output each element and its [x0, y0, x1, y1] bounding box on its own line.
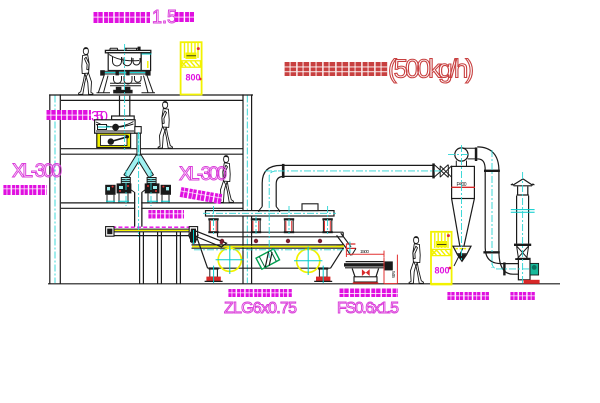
svg-text:1500: 1500 [360, 249, 369, 255]
svg-text:800: 800 [435, 266, 450, 276]
svg-text:545: 545 [390, 271, 396, 278]
svg-text:FS0.6x1.5: FS0.6x1.5 [337, 300, 399, 317]
svg-text:XL-300: XL-300 [12, 161, 62, 182]
svg-text:XL-300: XL-300 [179, 164, 227, 185]
svg-text:(500kg/h): (500kg/h) [388, 54, 474, 84]
svg-text:1.5: 1.5 [152, 7, 177, 27]
svg-text:ZLG6x0.75: ZLG6x0.75 [224, 300, 297, 317]
svg-text:800: 800 [186, 73, 201, 83]
